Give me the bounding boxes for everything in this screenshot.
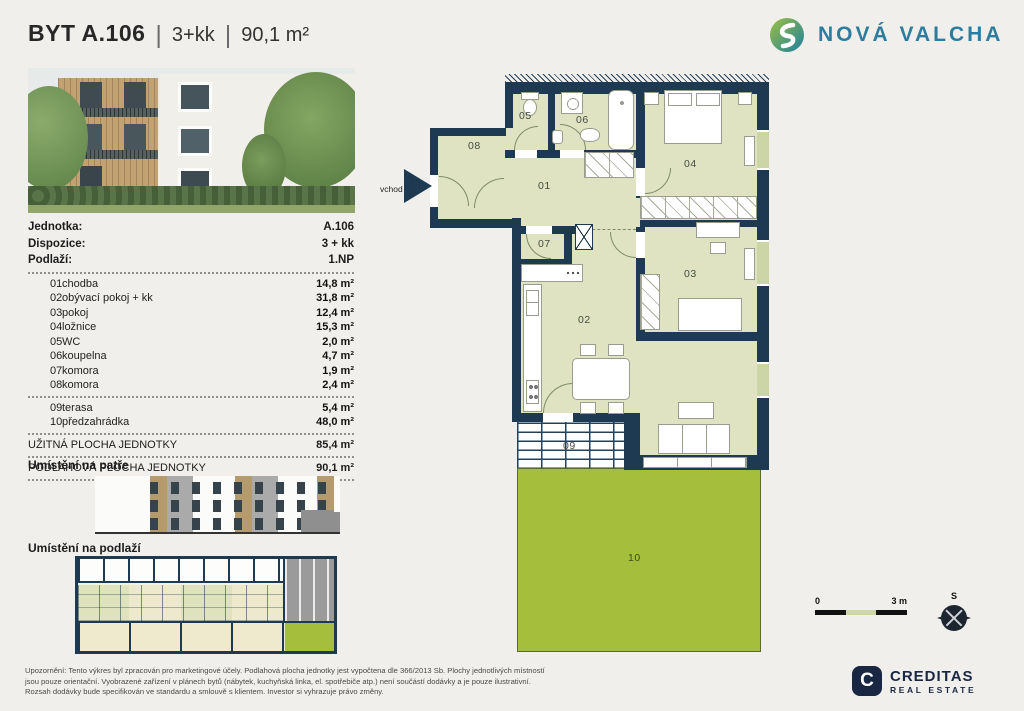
shaft [575, 224, 593, 250]
unit-title: BYT A.106 [28, 20, 145, 46]
room-name: předzahrádka [62, 416, 316, 428]
room-area: 14,8 m² [316, 278, 354, 290]
room-num: 05 [28, 336, 62, 348]
room-row: 04ložnice15,3 m² [28, 320, 354, 335]
room-num: 06 [28, 350, 62, 362]
window [757, 130, 769, 170]
scale-segments [815, 610, 907, 615]
info-label: Jednotka: [28, 221, 82, 233]
bed-single [678, 298, 742, 331]
info-label: Podlaží: [28, 254, 72, 266]
hall-wardrobe [584, 152, 634, 178]
sink [580, 128, 600, 142]
pillow [696, 93, 720, 106]
room-area: 12,4 m² [316, 307, 354, 319]
desk [696, 222, 740, 238]
creditas-logo: C CREDITAS REAL ESTATE [852, 666, 976, 696]
garden-window [643, 457, 747, 468]
room-num: 02 [28, 292, 62, 304]
chair [710, 242, 726, 254]
room-area: 15,3 m² [316, 321, 354, 333]
coffee-table [678, 402, 714, 419]
room-label-06: 06 [576, 114, 589, 126]
wardrobe [640, 196, 757, 219]
radiator [744, 136, 755, 166]
nightstand [644, 92, 659, 105]
room-label-08: 08 [468, 140, 481, 152]
disclaimer-line: jsou pouze orientační. Vyobrazené zaříze… [25, 677, 695, 688]
room-name: komora [62, 379, 322, 391]
room-num: 09 [28, 402, 62, 414]
page-title: BYT A.106|3+kk|90,1 m² [28, 20, 309, 50]
divider [28, 433, 354, 435]
facade-window-row [150, 482, 334, 494]
room-area: 2,4 m² [322, 379, 354, 391]
door-opening [526, 226, 552, 234]
creditas-c-icon: C [852, 666, 882, 696]
room-name: obývací pokoj + kk [62, 292, 316, 304]
hand-basin [552, 130, 563, 144]
door-opening [636, 168, 645, 196]
window [124, 124, 146, 150]
door-opening [560, 150, 584, 158]
title-separator: | [215, 21, 242, 49]
room-name: WC [62, 336, 322, 348]
radiator [744, 248, 755, 280]
cooktop [526, 380, 539, 404]
info-value: 1.NP [328, 254, 354, 266]
info-row: Jednotka:A.106 [28, 219, 354, 236]
creditas-name: CREDITAS [890, 668, 976, 685]
level-garden-highlight [285, 623, 334, 651]
sofa [658, 424, 730, 454]
room-area: 2,0 m² [322, 336, 354, 348]
washing-machine [561, 92, 583, 114]
terrace-door-opening [543, 413, 573, 422]
room-num: 04 [28, 321, 62, 333]
room-row: 05WC2,0 m² [28, 335, 354, 350]
info-value: 3 + kk [322, 238, 354, 250]
hatch-strip [505, 74, 769, 82]
kitchen-sink [526, 290, 539, 316]
kitchen-dots [566, 269, 580, 277]
level-apartments [78, 585, 283, 621]
wall [430, 219, 513, 228]
info-label: Dispozice: [28, 238, 86, 250]
brand-swirl-icon [768, 16, 806, 54]
window [178, 82, 212, 112]
chair [608, 402, 624, 414]
section-heading-floor: Umístění na patře [28, 458, 129, 472]
info-row: Dispozice:3 + kk [28, 236, 354, 253]
room-label-10: 10 [628, 552, 641, 564]
compass-tip [937, 616, 943, 620]
chair [608, 344, 624, 356]
room-row: 07komora1,9 m² [28, 364, 354, 379]
unit-layout: 3+kk [172, 24, 215, 46]
grass [28, 205, 355, 213]
total-row: UŽITNÁ PLOCHA JEDNOTKY85,4 m² [28, 438, 354, 453]
room-label-03: 03 [684, 268, 697, 280]
door-opening [515, 150, 537, 158]
room-area: 5,4 m² [322, 402, 354, 414]
total-area: 90,1 m² [316, 462, 354, 474]
room-name: komora [62, 365, 322, 377]
brand-logo: NOVÁ VALCHA [768, 16, 1003, 54]
window [80, 82, 102, 108]
room-label-02: 02 [578, 314, 591, 326]
floorplan-sheet: BYT A.106|3+kk|90,1 m² NOVÁ VALCHA [0, 0, 1024, 711]
room-name: koupelna [62, 350, 322, 362]
room-row: 08komora2,4 m² [28, 378, 354, 393]
room-label-01: 01 [538, 180, 551, 192]
level-unit-highlight [283, 559, 334, 621]
room-row: 10předzahrádka48,0 m² [28, 415, 354, 430]
room-row: 01chodba14,8 m² [28, 277, 354, 292]
elevation-diagram [95, 476, 340, 534]
floor-plan: 01 02 03 04 05 06 07 08 09 10 vchod [378, 72, 792, 666]
chair [580, 402, 596, 414]
unit-data-panel: Jednotka:A.106 Dispozice:3 + kk Podlaží:… [28, 219, 354, 484]
room-area: 31,8 m² [316, 292, 354, 304]
room-num: 08 [28, 379, 62, 391]
room-name: pokoj [62, 307, 316, 319]
room-label-04: 04 [684, 158, 697, 170]
entrance-arrow-icon [404, 169, 432, 203]
info-value: A.106 [323, 221, 354, 233]
disclaimer: Upozornění: Tento výkres byl zpracován p… [25, 666, 695, 698]
disclaimer-line: Upozornění: Tento výkres byl zpracován p… [25, 666, 695, 677]
window [178, 126, 212, 156]
title-separator: | [145, 21, 172, 49]
room-num: 10 [28, 416, 62, 428]
room-row: 03pokoj12,4 m² [28, 306, 354, 321]
room-label-05: 05 [519, 110, 532, 122]
room-label-07: 07 [538, 238, 551, 250]
room-num: 01 [28, 278, 62, 290]
divider [28, 272, 354, 274]
room-name: ložnice [62, 321, 316, 333]
window [757, 240, 769, 286]
compass-tip [965, 616, 971, 620]
room-label-09: 09 [563, 440, 576, 452]
section-heading-level: Umístění na podlaží [28, 541, 141, 555]
wall [430, 128, 506, 136]
disclaimer-line: Rozsah dodávky bude specifikován ve stan… [25, 687, 695, 698]
total-area: 85,4 m² [316, 439, 354, 451]
brand-name: NOVÁ VALCHA [818, 23, 1003, 47]
nightstand [738, 92, 752, 105]
info-row: Podlaží:1.NP [28, 252, 354, 269]
divider [28, 396, 354, 398]
level-diagram [75, 556, 337, 654]
creditas-sub: REAL ESTATE [890, 685, 976, 695]
wall [505, 82, 513, 128]
unit-highlight [301, 510, 334, 532]
window [757, 362, 769, 398]
wall [512, 218, 521, 422]
unit-area: 90,1 m² [241, 24, 309, 46]
scale-zero: 0 [815, 596, 820, 606]
window [124, 82, 146, 108]
room-num: 07 [28, 365, 62, 377]
chair [580, 344, 596, 356]
room-name: chodba [62, 278, 316, 290]
compass-rose-icon [941, 605, 967, 631]
bathtub [608, 90, 634, 150]
room-row: 06koupelna4,7 m² [28, 349, 354, 364]
total-label: UŽITNÁ PLOCHA JEDNOTKY [28, 439, 177, 451]
room-num: 03 [28, 307, 62, 319]
wall [636, 332, 769, 341]
compass-north-label: S [951, 591, 957, 601]
dining-table [572, 358, 630, 400]
compass: S [938, 586, 970, 631]
pillow [668, 93, 692, 106]
door-opening [636, 232, 645, 258]
room-area: 48,0 m² [316, 416, 354, 428]
wardrobe [640, 274, 660, 330]
scale-max: 3 m [891, 596, 907, 606]
room-name: terasa [62, 402, 322, 414]
building-photo [28, 68, 355, 213]
entrance-label: vchod [380, 184, 403, 194]
room-row: 02obývací pokoj + kk31,8 m² [28, 291, 354, 306]
room-row: 09terasa5,4 m² [28, 401, 354, 416]
room-area: 1,9 m² [322, 365, 354, 377]
room-area: 4,7 m² [322, 350, 354, 362]
facade-grey-block [334, 512, 340, 532]
